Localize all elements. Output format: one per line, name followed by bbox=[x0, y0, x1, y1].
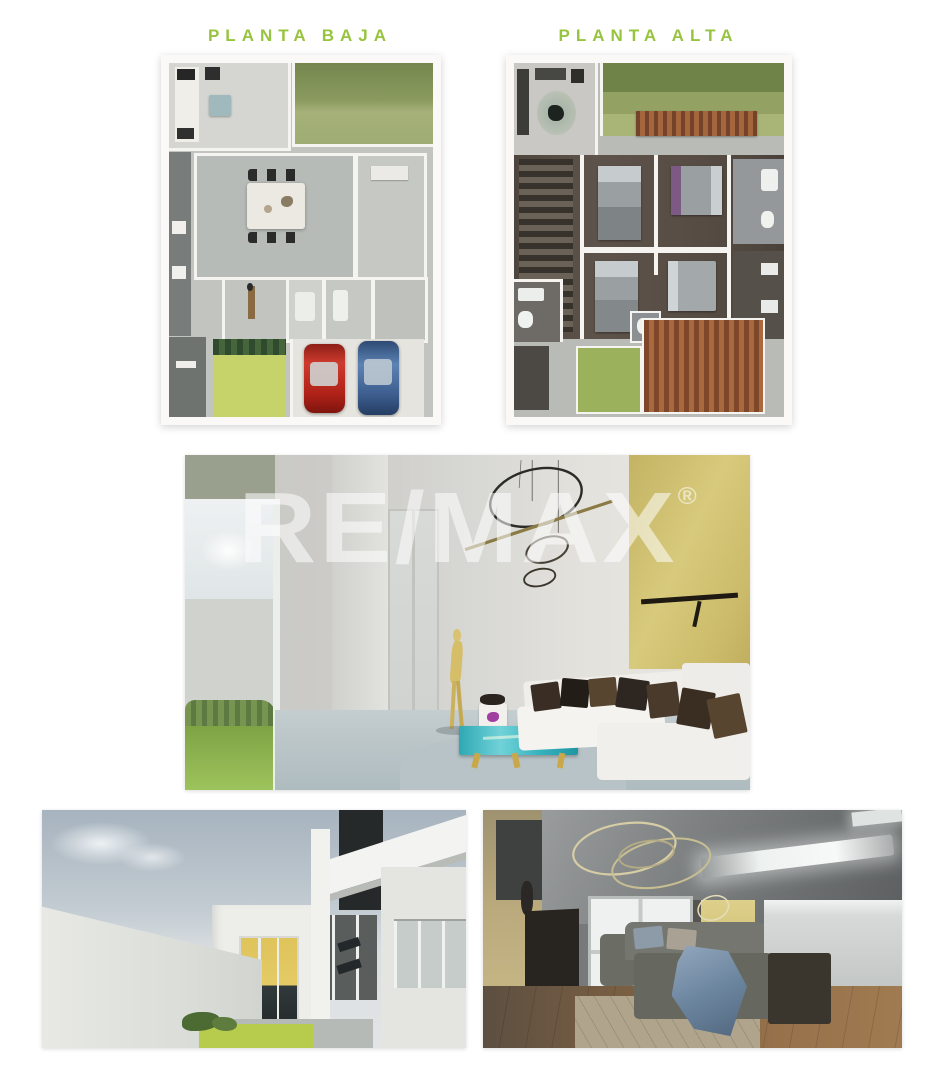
terrace-post bbox=[332, 915, 335, 1001]
garden-strip bbox=[292, 63, 433, 147]
bathtub bbox=[295, 292, 314, 321]
door-marker bbox=[172, 221, 185, 234]
toilet bbox=[518, 311, 534, 328]
wall bbox=[580, 247, 731, 253]
fixture-dot bbox=[247, 283, 253, 291]
bed bbox=[671, 166, 722, 216]
art-brush-stroke bbox=[641, 593, 738, 604]
stool-cushion bbox=[480, 694, 505, 705]
registered-trademark-symbol: ® bbox=[678, 483, 697, 510]
pergola-strip bbox=[636, 111, 758, 136]
bathroom bbox=[286, 277, 325, 343]
boundary-wall bbox=[185, 599, 275, 706]
cloud bbox=[118, 843, 186, 872]
toilet bbox=[761, 211, 774, 228]
garden-lawn bbox=[185, 726, 275, 790]
dining-chairs-row bbox=[248, 169, 303, 180]
window-mullion bbox=[277, 938, 280, 1020]
sculpture-leg bbox=[450, 681, 456, 729]
side-passage bbox=[169, 152, 191, 336]
side-yard bbox=[169, 337, 206, 417]
bathroom bbox=[514, 279, 563, 342]
kitchen-appliance bbox=[205, 67, 220, 80]
bed-pillows bbox=[595, 261, 638, 277]
desk bbox=[535, 68, 566, 81]
bed-pillows bbox=[668, 261, 678, 311]
sink-counter bbox=[518, 288, 545, 301]
living-room-render: RE/MAX® bbox=[185, 455, 750, 790]
green-patch bbox=[576, 346, 642, 414]
utility-room bbox=[222, 277, 289, 343]
tv-panel bbox=[496, 820, 542, 901]
car-windshield bbox=[364, 359, 392, 386]
wall bbox=[654, 155, 658, 275]
corner-column bbox=[311, 829, 330, 1048]
shelf bbox=[761, 300, 778, 312]
upper-floor-plan bbox=[514, 63, 784, 417]
upper-floor-title: PLANTA ALTA bbox=[505, 26, 792, 46]
ground-floor-title: PLANTA BAJA bbox=[160, 26, 440, 46]
bed-pillows bbox=[598, 166, 641, 182]
plant-sofa bbox=[548, 105, 564, 121]
sofa-pillow bbox=[531, 681, 563, 711]
shelf bbox=[761, 263, 778, 275]
terrace-window-band bbox=[394, 919, 466, 988]
sofa-pillow bbox=[588, 677, 619, 708]
storage-room bbox=[372, 277, 428, 343]
shelving-unit bbox=[517, 69, 528, 135]
dining-table bbox=[247, 183, 305, 229]
upper-floor-plan-card bbox=[506, 55, 792, 425]
ground-floor-plan bbox=[169, 63, 433, 417]
kitchen-appliance bbox=[177, 128, 194, 140]
fixture bbox=[333, 290, 348, 321]
sculpture-torso bbox=[450, 641, 463, 684]
front-lawn bbox=[213, 355, 287, 417]
dining-chairs-row bbox=[248, 232, 303, 243]
sofa-pillow bbox=[646, 681, 681, 718]
family-room-render bbox=[483, 810, 902, 1048]
remax-wordmark: RE/MAX bbox=[238, 472, 677, 584]
armchair bbox=[571, 69, 584, 84]
ground-floor-plan-card bbox=[161, 55, 441, 425]
laundry-room bbox=[323, 277, 374, 343]
wall-sconce bbox=[521, 881, 534, 914]
door-marker bbox=[172, 266, 185, 279]
purple-flower bbox=[487, 712, 498, 721]
dark-ottoman bbox=[768, 953, 831, 1024]
bed bbox=[668, 261, 717, 311]
purple-throw bbox=[671, 166, 681, 216]
kitchen-island bbox=[209, 95, 230, 115]
hedge-strip bbox=[213, 339, 287, 355]
sofa-pillow bbox=[633, 925, 664, 949]
family-room bbox=[355, 153, 427, 279]
remax-watermark: RE/MAX® bbox=[185, 478, 750, 578]
sculpture-leg bbox=[456, 681, 464, 729]
red-car bbox=[304, 344, 345, 413]
sofa-pillow bbox=[615, 677, 650, 711]
courtyard-render bbox=[42, 810, 466, 1048]
kitchen-appliance bbox=[177, 69, 195, 80]
art-brush-stroke bbox=[693, 601, 702, 627]
bed-blanket bbox=[598, 207, 641, 240]
car-windshield bbox=[310, 362, 338, 385]
table-decor bbox=[264, 205, 272, 213]
gold-figure-sculpture bbox=[442, 629, 473, 730]
door-marker bbox=[176, 361, 196, 368]
table-decor bbox=[281, 196, 294, 207]
wood-deck bbox=[642, 318, 765, 414]
study-room bbox=[514, 63, 598, 158]
bed bbox=[598, 166, 641, 240]
bed-pillows bbox=[711, 166, 722, 216]
dark-terrace bbox=[514, 346, 549, 410]
bathtub bbox=[761, 169, 778, 191]
console-furniture bbox=[371, 166, 407, 180]
round-rug bbox=[537, 91, 576, 135]
wood-door bbox=[248, 286, 255, 319]
blue-car bbox=[358, 341, 399, 415]
property-flyer-canvas: PLANTA BAJA PLANTA ALTA bbox=[0, 0, 942, 1080]
sofa-pillow bbox=[560, 678, 591, 709]
bathroom bbox=[733, 159, 784, 244]
kitchen-area bbox=[169, 63, 291, 151]
